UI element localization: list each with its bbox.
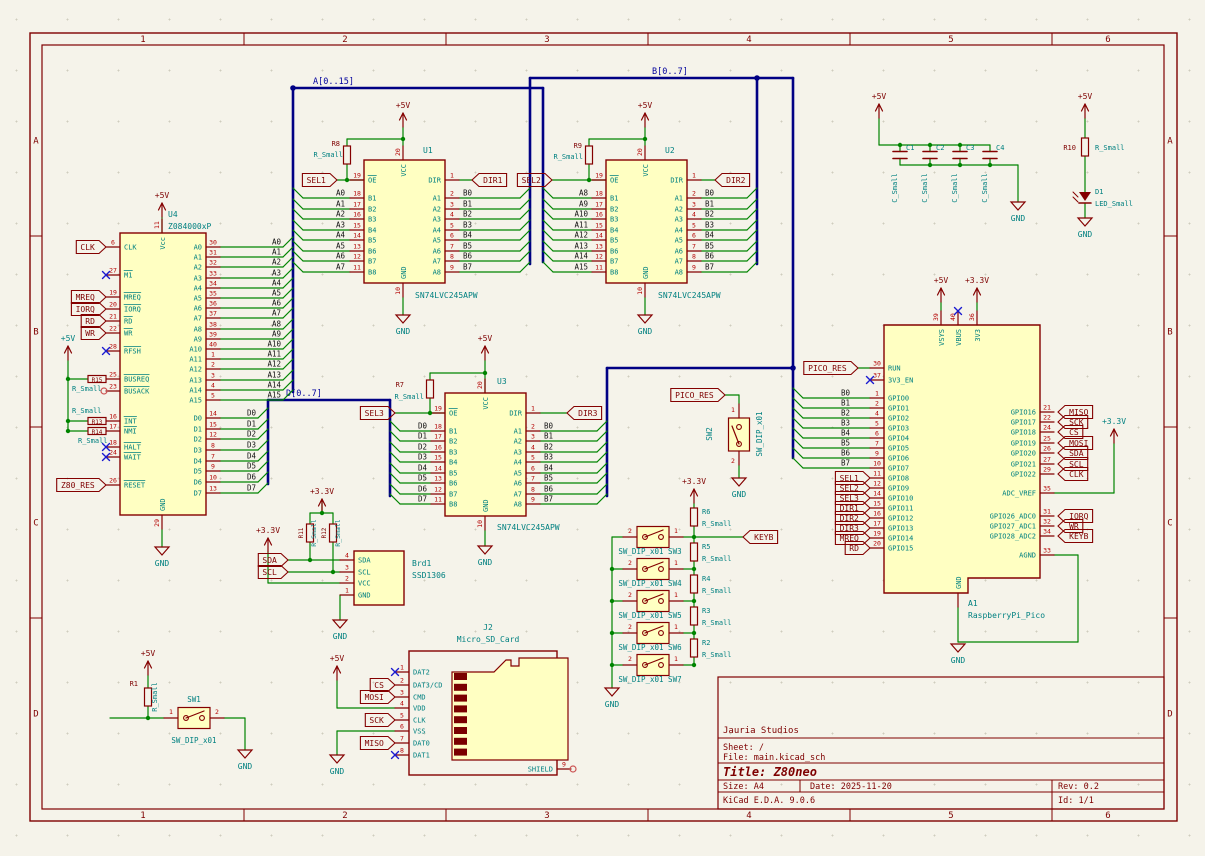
- bus-entry[interactable]: [258, 451, 268, 461]
- net-label[interactable]: A3: [272, 269, 281, 278]
- global-label-text[interactable]: MISO: [365, 739, 384, 748]
- bus-entry[interactable]: [747, 251, 757, 261]
- bus-entry[interactable]: [520, 199, 530, 209]
- global-label-IORQ[interactable]: IORQ: [71, 303, 106, 316]
- value[interactable]: Z084000xP: [168, 222, 212, 231]
- global-label-RD[interactable]: RD: [845, 542, 870, 555]
- global-label-DIR1[interactable]: DIR1: [472, 174, 507, 187]
- bus-entry[interactable]: [543, 220, 553, 230]
- net-label[interactable]: A13: [574, 242, 588, 251]
- bus-entry[interactable]: [283, 308, 293, 318]
- bus-entry[interactable]: [390, 494, 400, 504]
- net-label[interactable]: A7: [336, 263, 345, 272]
- value[interactable]: SN74LVC245APW: [497, 523, 560, 532]
- annotation-text[interactable]: C2: [936, 144, 944, 152]
- annotation-text[interactable]: SW_DIP_x01 SW4: [618, 579, 682, 588]
- net-label[interactable]: A13: [267, 371, 281, 380]
- bus-entry[interactable]: [283, 278, 293, 288]
- net-label[interactable]: D0: [418, 422, 428, 431]
- bus-entry[interactable]: [293, 220, 303, 230]
- power-flag[interactable]: +5V: [396, 101, 411, 127]
- net-label[interactable]: A0: [272, 238, 282, 247]
- power-flag[interactable]: +5V: [61, 334, 76, 360]
- capacitor[interactable]: [983, 145, 997, 165]
- led-D1[interactable]: [1073, 192, 1091, 203]
- global-label-CLK[interactable]: CLK: [1058, 468, 1088, 481]
- annotation-text[interactable]: R7: [396, 381, 404, 389]
- global-label-SCL[interactable]: SCL: [258, 566, 288, 579]
- annotation-text[interactable]: R6: [702, 508, 710, 516]
- annotation-text[interactable]: R_Small: [1095, 144, 1125, 152]
- switch[interactable]: 21: [623, 591, 683, 612]
- power-flag[interactable]: +3.3V: [1102, 417, 1126, 443]
- bus-entry[interactable]: [543, 262, 553, 272]
- net-label[interactable]: A2: [272, 258, 281, 267]
- net-label[interactable]: A1: [272, 248, 281, 257]
- global-label-text[interactable]: SCK: [369, 716, 384, 725]
- bus-entry[interactable]: [283, 288, 293, 298]
- value[interactable]: SSD1306: [412, 571, 446, 580]
- net-label[interactable]: B6: [463, 252, 473, 261]
- net-label[interactable]: A1: [336, 200, 345, 209]
- bus-entry[interactable]: [520, 241, 530, 251]
- bus-entry[interactable]: [747, 230, 757, 240]
- reference[interactable]: U4: [168, 210, 178, 219]
- bus-entry[interactable]: [283, 257, 293, 267]
- global-label-SEL2[interactable]: SEL2: [517, 174, 552, 187]
- bus-entry[interactable]: [520, 209, 530, 219]
- global-label-text[interactable]: IORQ: [76, 305, 95, 314]
- bus-entry[interactable]: [597, 494, 607, 504]
- net-label[interactable]: B5: [841, 439, 850, 448]
- annotation-text[interactable]: R5: [702, 543, 710, 551]
- power-flag[interactable]: +3.3V: [682, 477, 706, 503]
- bus-entry[interactable]: [520, 251, 530, 261]
- bus-entry[interactable]: [258, 483, 268, 493]
- annotation-text[interactable]: R_Small: [394, 393, 424, 401]
- bus-entry[interactable]: [283, 370, 293, 380]
- reference[interactable]: U2: [665, 146, 675, 155]
- net-label[interactable]: A14: [574, 252, 588, 261]
- net-label[interactable]: B2: [841, 409, 850, 418]
- switch[interactable]: 21: [623, 623, 683, 644]
- annotation-text[interactable]: C3: [966, 144, 974, 152]
- global-label-text[interactable]: PICO_RES: [675, 391, 714, 400]
- global-label-DIR3[interactable]: DIR3: [567, 407, 602, 420]
- gnd-symbol[interactable]: GND: [396, 315, 411, 336]
- annotation-text[interactable]: R_Small: [72, 385, 102, 393]
- annotation-text[interactable]: C_Small: [951, 173, 959, 203]
- global-label-text[interactable]: SDA: [1069, 449, 1084, 458]
- net-label[interactable]: A12: [267, 360, 281, 369]
- bus-entry[interactable]: [390, 452, 400, 462]
- global-label-text[interactable]: SEL1: [307, 176, 326, 185]
- net-label[interactable]: A5: [272, 289, 281, 298]
- net-label[interactable]: B3: [841, 419, 850, 428]
- net-label[interactable]: D7: [247, 484, 256, 493]
- reference[interactable]: J2: [483, 623, 493, 632]
- switch[interactable]: 12: [164, 708, 224, 729]
- net-label[interactable]: B1: [705, 200, 714, 209]
- annotation-text[interactable]: R14: [92, 429, 103, 436]
- global-label-text[interactable]: KEYB: [1069, 532, 1088, 541]
- bus-entry[interactable]: [283, 268, 293, 278]
- bus-entry[interactable]: [543, 188, 553, 198]
- gnd-symbol[interactable]: GND: [732, 478, 747, 499]
- bus-entry[interactable]: [283, 319, 293, 329]
- bus-entry[interactable]: [283, 359, 293, 369]
- bus-entry[interactable]: [793, 458, 803, 468]
- bus-entry[interactable]: [793, 388, 803, 398]
- bus-label[interactable]: A[0..15]: [313, 77, 354, 87]
- net-label[interactable]: A15: [267, 391, 281, 400]
- net-label[interactable]: A10: [267, 340, 281, 349]
- global-label-MISO[interactable]: MISO: [360, 737, 395, 750]
- bus-entry[interactable]: [258, 461, 268, 471]
- annotation-text[interactable]: R_Small: [702, 587, 732, 595]
- net-label[interactable]: B6: [705, 252, 715, 261]
- net-label[interactable]: B0: [705, 189, 715, 198]
- net-label[interactable]: B5: [544, 474, 553, 483]
- net-label[interactable]: D3: [418, 453, 427, 462]
- annotation-text[interactable]: R10: [1063, 144, 1076, 152]
- net-label[interactable]: B2: [463, 210, 472, 219]
- gnd-symbol[interactable]: GND: [155, 547, 170, 568]
- annotation-text[interactable]: SW_DIP_x01: [755, 411, 764, 456]
- net-label[interactable]: A8: [579, 189, 589, 198]
- net-label[interactable]: A4: [272, 279, 282, 288]
- power-flag[interactable]: +5V: [141, 649, 156, 675]
- bus-entry[interactable]: [258, 408, 268, 418]
- net-label[interactable]: A5: [336, 242, 345, 251]
- annotation-text[interactable]: R11: [298, 527, 305, 538]
- net-label[interactable]: B4: [841, 429, 851, 438]
- bus-entry[interactable]: [293, 188, 303, 198]
- gnd-symbol[interactable]: GND: [1011, 202, 1026, 223]
- net-label[interactable]: A8: [272, 320, 282, 329]
- bus-entry[interactable]: [390, 421, 400, 431]
- net-label[interactable]: D4: [247, 452, 257, 461]
- annotation-text[interactable]: R_Small: [78, 437, 108, 445]
- net-label[interactable]: A9: [272, 330, 281, 339]
- global-label-text[interactable]: WR: [85, 329, 95, 338]
- net-label[interactable]: B0: [463, 189, 473, 198]
- annotation-text[interactable]: R_Small: [334, 519, 342, 546]
- net-label[interactable]: D1: [418, 432, 427, 441]
- net-label[interactable]: D7: [418, 495, 427, 504]
- net-label[interactable]: B2: [544, 443, 553, 452]
- bus-entry[interactable]: [747, 199, 757, 209]
- bus-entry[interactable]: [520, 188, 530, 198]
- net-label[interactable]: D1: [247, 420, 256, 429]
- global-label-text[interactable]: SCL: [262, 568, 277, 577]
- bus-entry[interactable]: [293, 241, 303, 251]
- capacitor[interactable]: [923, 145, 937, 165]
- gnd-symbol[interactable]: GND: [330, 755, 345, 776]
- net-label[interactable]: B4: [463, 231, 473, 240]
- bus-entry[interactable]: [293, 209, 303, 219]
- bus-label[interactable]: B[0..7]: [652, 67, 688, 77]
- switch-body[interactable]: [637, 527, 669, 548]
- annotation-text[interactable]: R_Small: [702, 619, 732, 627]
- annotation-text[interactable]: LED_Small: [1095, 200, 1133, 208]
- gnd-symbol[interactable]: GND: [605, 688, 620, 709]
- global-label-text[interactable]: MREQ: [76, 293, 95, 302]
- bus-entry[interactable]: [793, 428, 803, 438]
- net-label[interactable]: B4: [544, 464, 554, 473]
- bus-entry[interactable]: [793, 398, 803, 408]
- net-label[interactable]: A3: [336, 221, 345, 230]
- bus-entry[interactable]: [597, 473, 607, 483]
- global-label-KEYB[interactable]: KEYB: [1058, 530, 1093, 543]
- bus-entry[interactable]: [543, 209, 553, 219]
- net-label[interactable]: B3: [463, 221, 472, 230]
- reference[interactable]: U1: [423, 146, 433, 155]
- annotation-text[interactable]: C_Small: [891, 173, 899, 203]
- net-label[interactable]: D4: [418, 464, 428, 473]
- net-label[interactable]: B1: [463, 200, 472, 209]
- bus-entry[interactable]: [283, 237, 293, 247]
- global-label-RD[interactable]: RD: [81, 315, 106, 328]
- annotation-text[interactable]: R12: [321, 527, 328, 538]
- annotation-text[interactable]: R_Small: [72, 407, 102, 415]
- global-label-text[interactable]: DIR1: [483, 176, 502, 185]
- bus-entry[interactable]: [597, 463, 607, 473]
- reference[interactable]: Brd1: [412, 559, 431, 568]
- switch[interactable]: 21: [623, 655, 683, 676]
- kicad-schematic-canvas[interactable]: 112233445566AABBCCDDJauria StudiosSheet:…: [0, 0, 1205, 856]
- bus-entry[interactable]: [597, 452, 607, 462]
- bus-entry[interactable]: [793, 408, 803, 418]
- bus-entry[interactable]: [283, 339, 293, 349]
- annotation-text[interactable]: R3: [702, 607, 710, 615]
- net-label[interactable]: B1: [841, 399, 850, 408]
- value[interactable]: SN74LVC245APW: [415, 291, 478, 300]
- annotation-text[interactable]: R15: [92, 377, 103, 384]
- annotation-text[interactable]: R1: [130, 680, 138, 688]
- net-label[interactable]: A6: [336, 252, 346, 261]
- annotation-text[interactable]: SW_DIP_x01 SW7: [618, 675, 681, 684]
- global-label-SEL1[interactable]: SEL1: [302, 174, 337, 187]
- annotation-text[interactable]: D1: [1095, 188, 1103, 196]
- bus-entry[interactable]: [597, 484, 607, 494]
- net-label[interactable]: D3: [247, 441, 256, 450]
- power-flag[interactable]: +5V: [478, 334, 493, 360]
- power-flag[interactable]: +5V: [1078, 92, 1093, 118]
- power-flag[interactable]: +5V: [638, 101, 653, 127]
- power-flag[interactable]: +5V: [934, 276, 949, 302]
- power-flag[interactable]: +3.3V: [310, 487, 334, 513]
- bus-entry[interactable]: [543, 230, 553, 240]
- net-label[interactable]: A0: [336, 189, 346, 198]
- resistor-body[interactable]: [1082, 138, 1089, 156]
- bus-entry[interactable]: [543, 199, 553, 209]
- annotation-text[interactable]: R_Small: [553, 153, 583, 161]
- bus-label[interactable]: D[0..7]: [286, 389, 322, 399]
- annotation-text[interactable]: C4: [996, 144, 1004, 152]
- net-label[interactable]: A9: [579, 200, 588, 209]
- net-label[interactable]: A10: [574, 210, 588, 219]
- gnd-symbol[interactable]: GND: [333, 620, 348, 641]
- global-label-MREQ[interactable]: MREQ: [71, 291, 106, 304]
- net-label[interactable]: D6: [247, 473, 257, 482]
- bus-entry[interactable]: [293, 230, 303, 240]
- annotation-text[interactable]: R13: [92, 419, 103, 426]
- global-label-text[interactable]: DIR3: [578, 409, 597, 418]
- resistor-body[interactable]: [691, 543, 698, 561]
- value[interactable]: SN74LVC245APW: [658, 291, 721, 300]
- annotation-text[interactable]: SW_DIP_x01 SW5: [618, 611, 681, 620]
- switch-body[interactable]: [637, 559, 669, 580]
- net-label[interactable]: A11: [574, 221, 588, 230]
- annotation-text[interactable]: R_Small: [151, 682, 159, 712]
- power-flag[interactable]: +3.3V: [256, 526, 280, 552]
- global-label-CS[interactable]: CS: [370, 679, 395, 692]
- annotation-text[interactable]: R8: [332, 140, 340, 148]
- net-label[interactable]: B4: [705, 231, 715, 240]
- annotation-text[interactable]: C_Small: [921, 173, 929, 203]
- global-label-PICO_RES[interactable]: PICO_RES: [671, 389, 725, 402]
- bus-entry[interactable]: [283, 349, 293, 359]
- bus-entry[interactable]: [793, 438, 803, 448]
- bus-entry[interactable]: [747, 188, 757, 198]
- gnd-symbol[interactable]: GND: [238, 750, 253, 771]
- annotation-text[interactable]: SW1: [187, 695, 201, 704]
- net-label[interactable]: A7: [272, 309, 281, 318]
- bus-entry[interactable]: [520, 220, 530, 230]
- global-label-PICO_RES[interactable]: PICO_RES: [804, 362, 858, 375]
- global-label-text[interactable]: CLK: [80, 243, 95, 252]
- net-label[interactable]: A11: [267, 350, 281, 359]
- gnd-symbol[interactable]: GND: [638, 315, 653, 336]
- global-label-text[interactable]: RD: [849, 544, 859, 553]
- bus-entry[interactable]: [390, 463, 400, 473]
- net-label[interactable]: B5: [705, 242, 714, 251]
- global-label-text[interactable]: DIR2: [726, 176, 745, 185]
- net-label[interactable]: A6: [272, 299, 282, 308]
- resistor-body[interactable]: [586, 146, 593, 164]
- switch-body[interactable]: [637, 623, 669, 644]
- resistor-body[interactable]: [427, 380, 434, 398]
- net-label[interactable]: D0: [247, 409, 257, 418]
- net-label[interactable]: A15: [574, 263, 588, 272]
- bus-entry[interactable]: [293, 199, 303, 209]
- bus-entry[interactable]: [283, 247, 293, 257]
- bus-entry[interactable]: [390, 473, 400, 483]
- global-label-text[interactable]: KEYB: [754, 533, 773, 542]
- bus-entry[interactable]: [283, 298, 293, 308]
- annotation-text[interactable]: R2: [702, 639, 710, 647]
- power-flag[interactable]: +5V: [330, 654, 345, 680]
- reference[interactable]: A1: [968, 599, 978, 608]
- net-label[interactable]: D5: [418, 474, 427, 483]
- global-label-text[interactable]: SEL3: [365, 409, 384, 418]
- bus-entry[interactable]: [390, 431, 400, 441]
- value[interactable]: Micro_SD_Card: [457, 635, 520, 644]
- power-flag[interactable]: +3.3V: [965, 276, 989, 302]
- net-label[interactable]: B7: [463, 263, 472, 272]
- net-label[interactable]: B5: [463, 242, 472, 251]
- global-label-SDA[interactable]: SDA: [258, 554, 288, 567]
- global-label-text[interactable]: PICO_RES: [808, 364, 847, 373]
- net-label[interactable]: B7: [705, 263, 714, 272]
- global-label-Z80_RES[interactable]: Z80_RES: [57, 479, 106, 492]
- annotation-text[interactable]: C1: [906, 144, 914, 152]
- annotation-text[interactable]: R9: [574, 142, 582, 150]
- annotation-text[interactable]: R_Small: [702, 555, 732, 563]
- capacitor[interactable]: [953, 145, 967, 165]
- net-label[interactable]: B7: [841, 459, 850, 468]
- global-label-WR[interactable]: WR: [81, 327, 106, 340]
- global-label-text[interactable]: CS: [374, 681, 384, 690]
- bus-entry[interactable]: [293, 262, 303, 272]
- bus-entry[interactable]: [747, 209, 757, 219]
- power-flag[interactable]: +5V: [872, 92, 887, 118]
- reference[interactable]: U3: [497, 377, 507, 386]
- annotation-text[interactable]: SW_DIP_x01: [171, 736, 216, 745]
- bus-entry[interactable]: [390, 442, 400, 452]
- bus-entry[interactable]: [793, 448, 803, 458]
- annotation-text[interactable]: SW_DIP_x01 SW3: [618, 547, 681, 556]
- net-label[interactable]: A14: [267, 381, 281, 390]
- net-label[interactable]: A12: [574, 231, 588, 240]
- global-label-text[interactable]: SEL2: [522, 176, 541, 185]
- net-label[interactable]: D2: [247, 430, 256, 439]
- annotation-text[interactable]: R_Small: [310, 519, 318, 546]
- resistor-body[interactable]: [691, 508, 698, 526]
- bus-entry[interactable]: [747, 241, 757, 251]
- bus-entry[interactable]: [597, 431, 607, 441]
- net-label[interactable]: A2: [336, 210, 345, 219]
- bus-entry[interactable]: [520, 262, 530, 272]
- bus-entry[interactable]: [597, 421, 607, 431]
- net-label[interactable]: B7: [544, 495, 553, 504]
- annotation-text[interactable]: R_Small: [702, 520, 732, 528]
- bus-entry[interactable]: [747, 220, 757, 230]
- switch[interactable]: 21: [623, 559, 683, 580]
- resistor-body[interactable]: [691, 639, 698, 657]
- global-label-WR[interactable]: WR: [1058, 520, 1083, 533]
- capacitor[interactable]: [893, 145, 907, 165]
- net-label[interactable]: B0: [841, 389, 851, 398]
- global-label-text[interactable]: CLK: [1069, 470, 1084, 479]
- global-label-CLK[interactable]: CLK: [76, 241, 106, 254]
- net-label[interactable]: B6: [544, 485, 554, 494]
- annotation-text[interactable]: C_Small: [981, 173, 989, 203]
- gnd-symbol[interactable]: GND: [1078, 218, 1093, 239]
- value[interactable]: RaspberryPi_Pico: [968, 611, 1045, 620]
- global-label-text[interactable]: MOSI: [365, 693, 384, 702]
- annotation-text[interactable]: R4: [702, 575, 710, 583]
- bus-entry[interactable]: [293, 251, 303, 261]
- bus-entry[interactable]: [543, 241, 553, 251]
- net-label[interactable]: B3: [705, 221, 714, 230]
- net-label[interactable]: D5: [247, 462, 256, 471]
- global-label-DIR2[interactable]: DIR2: [715, 174, 750, 187]
- global-label-SCL[interactable]: SCL: [1058, 458, 1088, 471]
- bus-entry[interactable]: [793, 418, 803, 428]
- bus-entry[interactable]: [258, 419, 268, 429]
- global-label-text[interactable]: RD: [85, 317, 95, 326]
- resistor-body[interactable]: [691, 575, 698, 593]
- gnd-symbol[interactable]: GND: [951, 644, 966, 665]
- net-label[interactable]: D6: [418, 485, 428, 494]
- bus-entry[interactable]: [747, 262, 757, 272]
- gnd-symbol[interactable]: GND: [478, 546, 493, 567]
- net-label[interactable]: A4: [336, 231, 346, 240]
- bus-entry[interactable]: [258, 429, 268, 439]
- bus-entry[interactable]: [258, 440, 268, 450]
